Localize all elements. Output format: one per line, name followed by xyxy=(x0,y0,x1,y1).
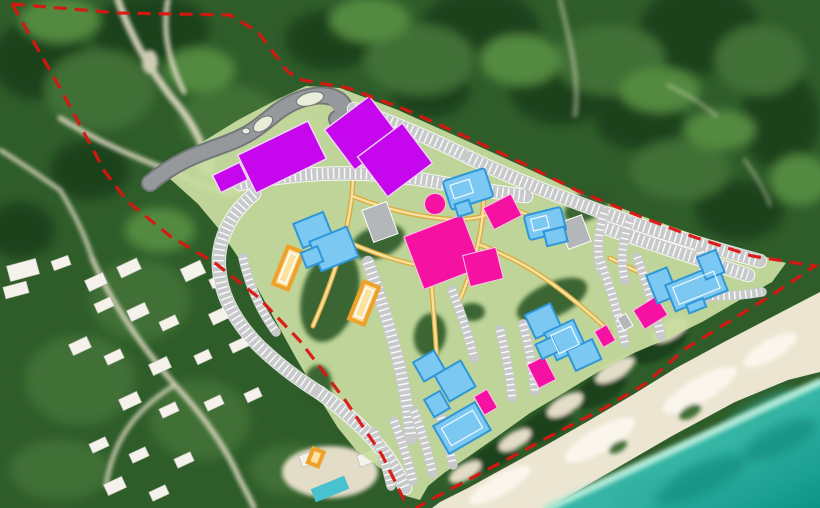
site-plan-map xyxy=(0,0,820,508)
court-orange xyxy=(308,448,324,466)
building-pink-circle xyxy=(425,194,446,215)
map-stage xyxy=(0,0,820,508)
